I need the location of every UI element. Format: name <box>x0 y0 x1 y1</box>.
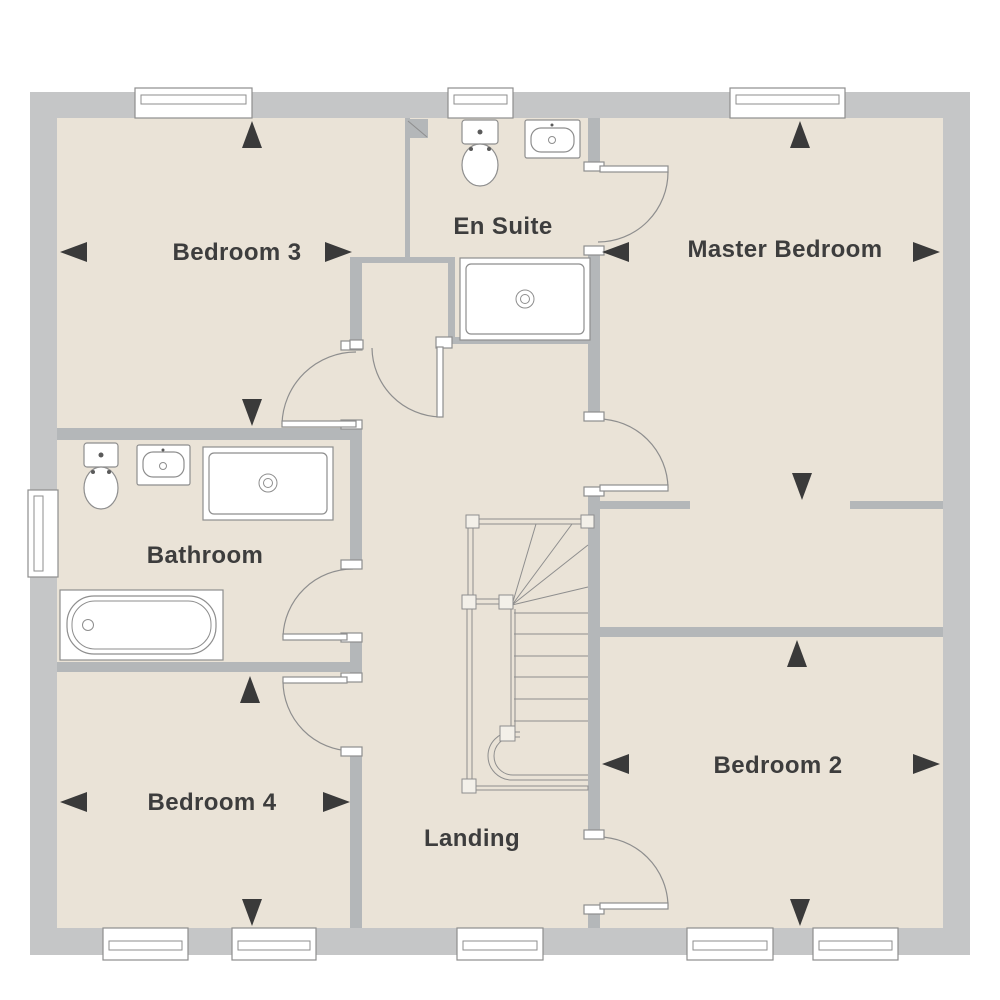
door-jamb <box>584 412 604 421</box>
ensuite-shower-icon <box>460 258 590 340</box>
wall-bedroom2-top <box>588 627 943 637</box>
wall-bathroom-top <box>57 428 362 440</box>
room-label-master-bedroom: Master Bedroom <box>688 236 883 264</box>
wall-master-inner-right <box>850 501 943 509</box>
floor-plan: Bedroom 3 En Suite Master Bedroom Bathro… <box>0 0 1000 1000</box>
door-jamb <box>584 246 604 255</box>
window-bathroom <box>28 490 58 577</box>
door-leaf <box>282 421 356 427</box>
window-ensuite <box>448 88 513 118</box>
door-leaf <box>283 677 347 683</box>
room-label-bathroom: Bathroom <box>147 542 264 570</box>
window-bedroom3 <box>135 88 252 118</box>
newel-post <box>581 515 594 528</box>
room-label-bedroom4: Bedroom 4 <box>148 789 277 817</box>
ensuite-toilet-icon <box>462 120 498 186</box>
door-leaf <box>283 634 347 640</box>
room-label-ensuite: En Suite <box>453 213 552 241</box>
wall-cupboard-top <box>350 257 455 263</box>
door-jamb <box>584 830 604 839</box>
wall-cupboard-right <box>448 257 455 343</box>
window-master <box>730 88 845 118</box>
room-label-bedroom3: Bedroom 3 <box>173 239 302 267</box>
room-label-bedroom2: Bedroom 2 <box>714 752 843 780</box>
window-bedroom4-left <box>103 928 188 960</box>
bathroom-basin-icon <box>137 445 190 485</box>
window-bedroom2-right <box>813 928 898 960</box>
door-leaf <box>600 903 668 909</box>
window-bedroom2-left <box>687 928 773 960</box>
wall-bathroom-right-upper <box>350 440 362 567</box>
door-jamb <box>341 747 362 756</box>
bathroom-shower-icon <box>203 447 333 520</box>
newel-post <box>462 595 476 609</box>
door-jamb <box>350 340 363 349</box>
door-leaf <box>600 166 668 172</box>
door-jamb <box>341 560 362 569</box>
ensuite-basin-icon <box>525 120 580 158</box>
window-landing <box>457 928 543 960</box>
wall-bedroom3-ensuite <box>405 118 410 258</box>
newel-post <box>462 779 476 793</box>
newel-post <box>466 515 479 528</box>
newel-post <box>500 726 515 741</box>
door-leaf <box>600 485 668 491</box>
wall-master-inner-left <box>594 501 690 509</box>
door-jamb <box>436 337 452 348</box>
bathroom-toilet-icon <box>84 443 118 509</box>
window-bedroom4-right <box>232 928 316 960</box>
bathtub-icon <box>60 590 223 660</box>
wall-bedroom4-right <box>350 754 362 928</box>
newel-post <box>499 595 513 609</box>
wall-main-vertical-3 <box>588 489 600 838</box>
wall-right <box>943 92 970 955</box>
door-leaf <box>437 347 443 417</box>
wall-cupboard-left <box>350 257 362 347</box>
room-label-landing: Landing <box>424 825 520 853</box>
wall-bathroom-bottom <box>57 662 362 672</box>
